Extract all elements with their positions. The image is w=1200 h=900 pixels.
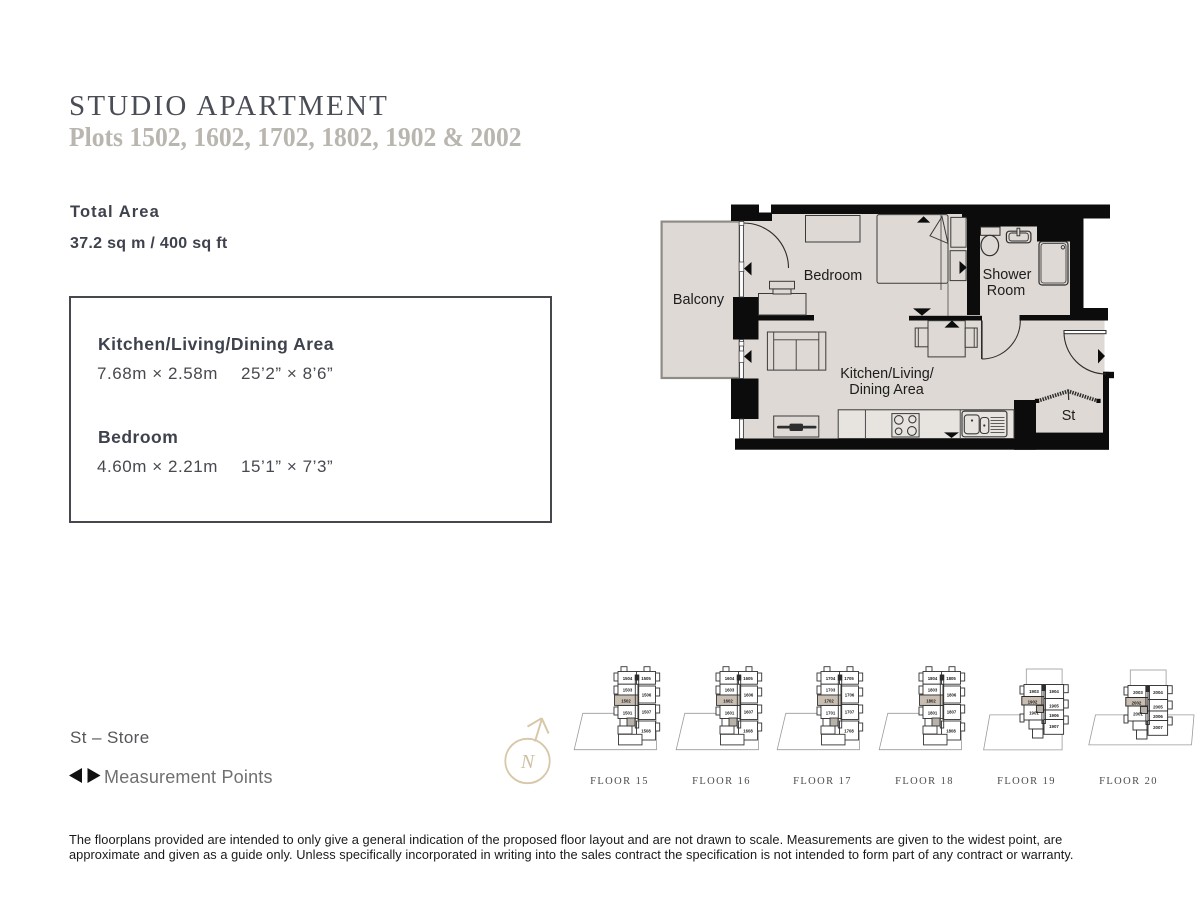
svg-text:1905: 1905: [1049, 704, 1059, 709]
svg-text:1706: 1706: [845, 693, 855, 698]
svg-text:1602: 1602: [723, 699, 733, 704]
svg-text:1607: 1607: [744, 710, 754, 715]
svg-text:1807: 1807: [947, 710, 957, 715]
svg-text:1806: 1806: [947, 693, 957, 698]
svg-text:1803: 1803: [928, 688, 938, 693]
svg-text:2007: 2007: [1153, 725, 1163, 730]
svg-text:1702: 1702: [824, 699, 834, 704]
svg-text:1601: 1601: [725, 711, 735, 716]
svg-text:2002: 2002: [1132, 701, 1142, 706]
svg-text:1705: 1705: [844, 676, 854, 681]
svg-text:1605: 1605: [743, 676, 753, 681]
svg-text:1603: 1603: [725, 688, 735, 693]
svg-text:1506: 1506: [642, 693, 652, 698]
svg-text:Bedroom: Bedroom: [804, 268, 862, 284]
svg-text:1903: 1903: [1029, 689, 1039, 694]
svg-text:1801: 1801: [928, 711, 938, 716]
svg-text:1503: 1503: [623, 688, 633, 693]
svg-text:1502: 1502: [621, 699, 631, 704]
svg-text:2006: 2006: [1153, 714, 1163, 719]
svg-text:Kitchen/Living/: Kitchen/Living/: [840, 366, 934, 382]
svg-text:1906: 1906: [1049, 713, 1059, 718]
svg-text:1904: 1904: [1049, 689, 1059, 694]
svg-text:1708: 1708: [844, 729, 854, 734]
svg-text:1901: 1901: [1029, 711, 1039, 716]
svg-text:1701: 1701: [826, 711, 836, 716]
svg-text:1507: 1507: [642, 710, 652, 715]
svg-text:2001: 2001: [1133, 712, 1143, 717]
svg-text:Shower: Shower: [983, 267, 1032, 283]
svg-text:1802: 1802: [926, 699, 936, 704]
svg-text:N: N: [520, 751, 536, 773]
svg-text:Room: Room: [987, 283, 1025, 299]
svg-text:1608: 1608: [743, 729, 753, 734]
svg-text:1707: 1707: [845, 710, 855, 715]
svg-text:2005: 2005: [1153, 705, 1163, 710]
svg-text:1501: 1501: [623, 711, 633, 716]
svg-text:1902: 1902: [1028, 700, 1038, 705]
svg-text:1704: 1704: [826, 676, 836, 681]
svg-text:Dining Area: Dining Area: [849, 382, 923, 398]
svg-text:1504: 1504: [623, 676, 633, 681]
svg-text:Balcony: Balcony: [673, 292, 725, 308]
svg-text:1804: 1804: [928, 676, 938, 681]
svg-text:St: St: [1062, 408, 1076, 424]
svg-text:2003: 2003: [1133, 690, 1143, 695]
svg-text:1907: 1907: [1049, 724, 1059, 729]
svg-text:1606: 1606: [744, 693, 754, 698]
svg-text:1604: 1604: [725, 676, 735, 681]
svg-text:1508: 1508: [641, 729, 651, 734]
svg-text:1805: 1805: [946, 676, 956, 681]
svg-text:1505: 1505: [641, 676, 651, 681]
svg-text:2004: 2004: [1153, 690, 1163, 695]
svg-text:1703: 1703: [826, 688, 836, 693]
svg-text:1808: 1808: [946, 729, 956, 734]
